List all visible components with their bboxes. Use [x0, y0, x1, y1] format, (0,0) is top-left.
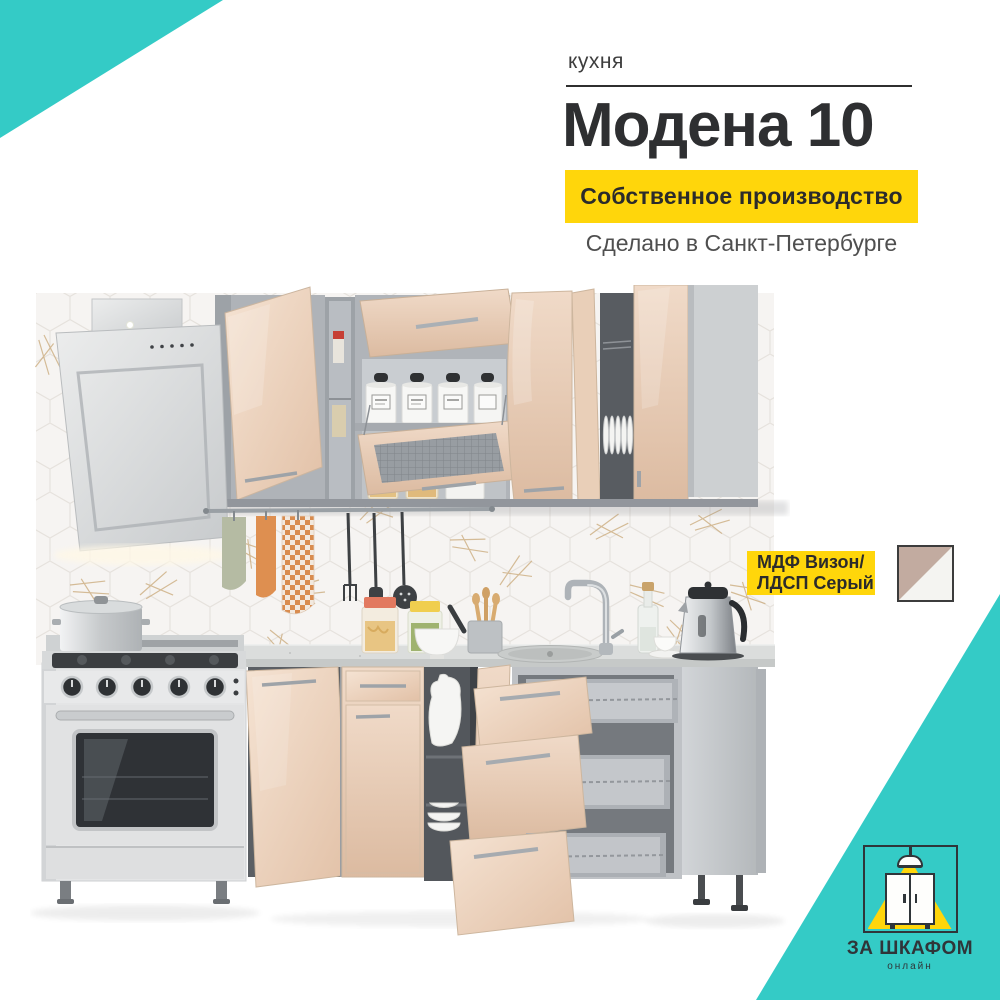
plates [603, 416, 632, 454]
stove-legs [57, 881, 230, 904]
divider-line [566, 85, 912, 87]
base-cabinet-open-door [246, 667, 348, 887]
coral-lid [364, 597, 396, 608]
adjustable-legs [693, 875, 748, 911]
end-panel [682, 667, 766, 911]
production-badge: Собственное производство [565, 170, 918, 223]
corner-wall-cabinet [507, 289, 600, 503]
shelf-cabinet [355, 289, 518, 503]
corner-accent-top-left [0, 0, 223, 138]
brand-logo: ЗА ШКАФОМ онлайн [845, 845, 975, 972]
logo-frame [863, 845, 958, 933]
product-title: Модена 10 [562, 93, 942, 158]
material-badge: МДФ Визон/ ЛДСП Серый [747, 551, 875, 595]
sink [498, 646, 602, 663]
gas-stove [42, 596, 246, 904]
cork [642, 582, 654, 591]
pitcher [429, 674, 461, 746]
brand-subname: онлайн [845, 961, 975, 972]
stock-pot [52, 596, 150, 651]
drawer-unit [450, 667, 682, 935]
category-label: кухня [568, 50, 624, 74]
yellow-lid [410, 601, 440, 612]
red-lid-jar [333, 331, 344, 339]
material-swatch [897, 545, 954, 602]
kitchen-photo [30, 285, 790, 940]
oven [46, 705, 244, 845]
made-in-label: Сделано в Санкт-Петербурге [565, 230, 918, 257]
wardrobe-icon [885, 873, 935, 925]
promo-banner: кухня Модена 10 Собственное производство… [0, 0, 1000, 1000]
wall-cabinet-left [215, 287, 325, 503]
brand-name: ЗА ШКАФОМ [845, 938, 975, 960]
range-hood [54, 299, 230, 565]
lamp-icon [897, 855, 923, 868]
hood-light-glow [54, 545, 230, 565]
spice-column [325, 297, 355, 503]
plate-rack-cabinet [600, 293, 634, 501]
material-line2: ЛДСП Серый [757, 573, 875, 594]
base-cabinet-drawers-closed [340, 667, 424, 877]
material-line1: МДФ Визон/ [757, 552, 875, 573]
